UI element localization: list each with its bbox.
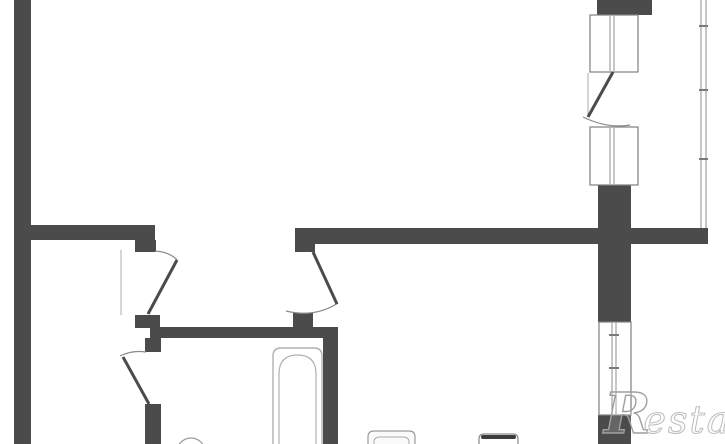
bathroom-left-wall-upper	[145, 338, 161, 352]
bathroom-door-swing-arc	[120, 352, 146, 357]
hall-door-jamb-bottom	[135, 315, 160, 328]
kitchen-door-leaf	[313, 252, 337, 304]
kitchen-door-jamb-bottom	[293, 313, 313, 328]
floorplan-canvas: R estate	[0, 0, 725, 444]
right-wall-top-stub	[597, 0, 652, 15]
living-room-bottom-wall	[31, 225, 155, 240]
bathroom-door-leaf	[123, 357, 149, 404]
floorplan-drawing	[0, 0, 725, 444]
right-wall-mid	[598, 185, 631, 322]
bathroom-top-wall	[150, 327, 338, 338]
kitchen-door-swing-arc	[286, 303, 338, 313]
kitchen-door-jamb-top	[295, 240, 315, 252]
hall-door-jamb-top	[135, 240, 156, 252]
stove-top-band	[481, 435, 516, 439]
kitchen-top-wall	[295, 228, 708, 244]
bathroom-left-wall-lower	[145, 404, 161, 444]
hall-door-leaf	[148, 260, 177, 314]
bathtub-outline	[273, 348, 322, 444]
balcony-door-leaf	[588, 72, 613, 117]
right-wall-bottom	[598, 415, 631, 444]
outer-wall-left	[14, 0, 31, 444]
hall-door-swing-arc	[155, 251, 177, 260]
washbasin	[177, 438, 205, 444]
bathroom-right-wall	[323, 337, 338, 444]
balcony-door-swing-arc	[583, 117, 630, 126]
